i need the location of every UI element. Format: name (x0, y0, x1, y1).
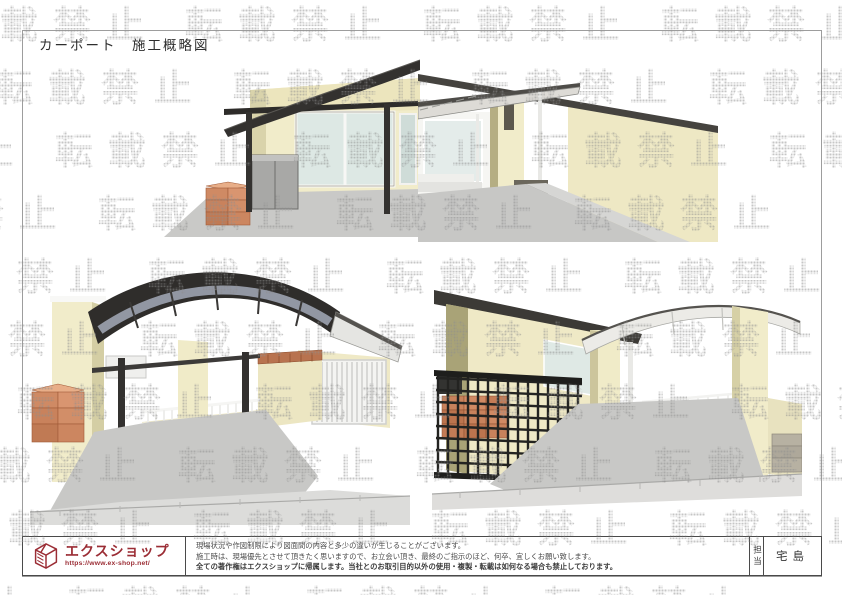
disclaimer-line-2: 施工時は、現場優先とさせて頂きたく思いますので、お立会い頂き、最終のご指示のほど… (196, 552, 749, 563)
person-in-charge-name: 宅島 (776, 548, 809, 564)
carport-entrance-render (432, 278, 802, 510)
disclaimer-cell: 現場状況や作図制限により図面間の内容と多少の違いが生じることがございます。 施工… (186, 537, 750, 575)
slat-gate (312, 360, 386, 424)
watermark-text: 転載禁止 (0, 574, 42, 595)
brand-url: https://www.ex-shop.net/ (65, 561, 170, 568)
brick-stack (32, 384, 84, 442)
brand-name: エクスショップ (65, 544, 170, 558)
watermark-text: 転載禁止 (306, 574, 518, 595)
render-view-1 (100, 52, 420, 237)
person-in-charge-label-cell: 担当 (750, 537, 764, 575)
carport-front-render (100, 52, 420, 237)
ac-unit (252, 155, 298, 209)
watermark-text: 転載禁止 (68, 574, 280, 595)
carport-roof (88, 272, 402, 362)
carport-side-render (418, 52, 718, 242)
render-view-4 (432, 278, 802, 510)
brick-stack (206, 182, 250, 225)
document-page: カーポート 施工概略図 (0, 0, 842, 595)
person-in-charge-label: 担当 (751, 545, 763, 568)
watermark-text: 転載禁止 (544, 574, 756, 595)
box-logo-icon (33, 542, 59, 570)
logo-cell: エクスショップ https://www.ex-shop.net/ (23, 537, 186, 575)
logo-text-block: エクスショップ https://www.ex-shop.net/ (65, 544, 170, 568)
disclaimer-line-3: 全ての著作権はエクスショップに帰属します。当社とのお取引目的以外の使用・複製・転… (196, 562, 749, 573)
render-view-3 (30, 250, 410, 525)
render-view-2 (418, 52, 718, 242)
footer-bar: エクスショップ https://www.ex-shop.net/ 現場状況や作図… (22, 536, 822, 576)
person-in-charge-name-cell: 宅島 (764, 537, 821, 575)
page-title: カーポート 施工概略図 (39, 34, 210, 54)
disclaimer-line-1: 現場状況や作図制限により図面間の内容と多少の違いが生じることがございます。 (196, 541, 749, 552)
carport-perspective-render (30, 250, 410, 525)
